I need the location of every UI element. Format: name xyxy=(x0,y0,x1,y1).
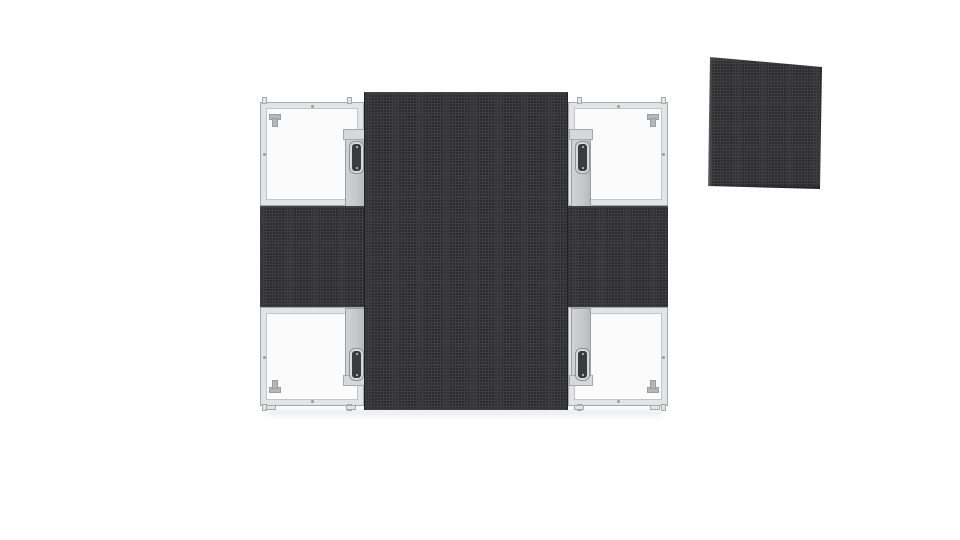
bracket-plate xyxy=(569,129,593,140)
frame-tab xyxy=(661,404,666,411)
lift-handle xyxy=(576,142,589,173)
frame-tab xyxy=(577,97,582,104)
mounting-bracket xyxy=(345,129,365,207)
screw-icon xyxy=(662,356,665,359)
hanging-hook-icon xyxy=(269,112,281,125)
frame-foot xyxy=(266,405,276,410)
lift-handle xyxy=(350,349,363,380)
mounting-bracket xyxy=(571,129,591,207)
led-cabinet-assembly xyxy=(258,92,670,418)
screw-icon xyxy=(617,400,620,403)
empty-cabinet-frame-top-left xyxy=(260,102,364,206)
mounting-bracket xyxy=(571,308,591,386)
empty-cabinet-frame-top-right xyxy=(568,102,668,206)
hanging-hook-icon xyxy=(647,112,659,125)
empty-cabinet-frame-bottom-right xyxy=(568,307,668,406)
screw-icon xyxy=(662,153,665,156)
frame-foot xyxy=(574,405,584,410)
empty-cabinet-frame-bottom-left xyxy=(260,307,364,406)
led-module-column xyxy=(364,92,568,410)
detached-led-module xyxy=(708,55,823,190)
frame-foot xyxy=(346,405,356,410)
assembly-shadow xyxy=(268,410,662,415)
screw-icon xyxy=(263,356,266,359)
screw-icon xyxy=(617,105,620,108)
frame-tab xyxy=(262,97,267,104)
screw-icon xyxy=(311,400,314,403)
frame-foot xyxy=(650,405,660,410)
frame-tab xyxy=(347,97,352,104)
frame-tab xyxy=(661,97,666,104)
lift-handle xyxy=(576,349,589,380)
product-render xyxy=(0,0,960,540)
hanging-hook-icon xyxy=(647,382,659,395)
lift-handle xyxy=(350,142,363,173)
mounting-bracket xyxy=(345,308,365,386)
screw-icon xyxy=(311,105,314,108)
led-module-face xyxy=(708,55,823,190)
hanging-hook-icon xyxy=(269,382,281,395)
screw-icon xyxy=(263,153,266,156)
